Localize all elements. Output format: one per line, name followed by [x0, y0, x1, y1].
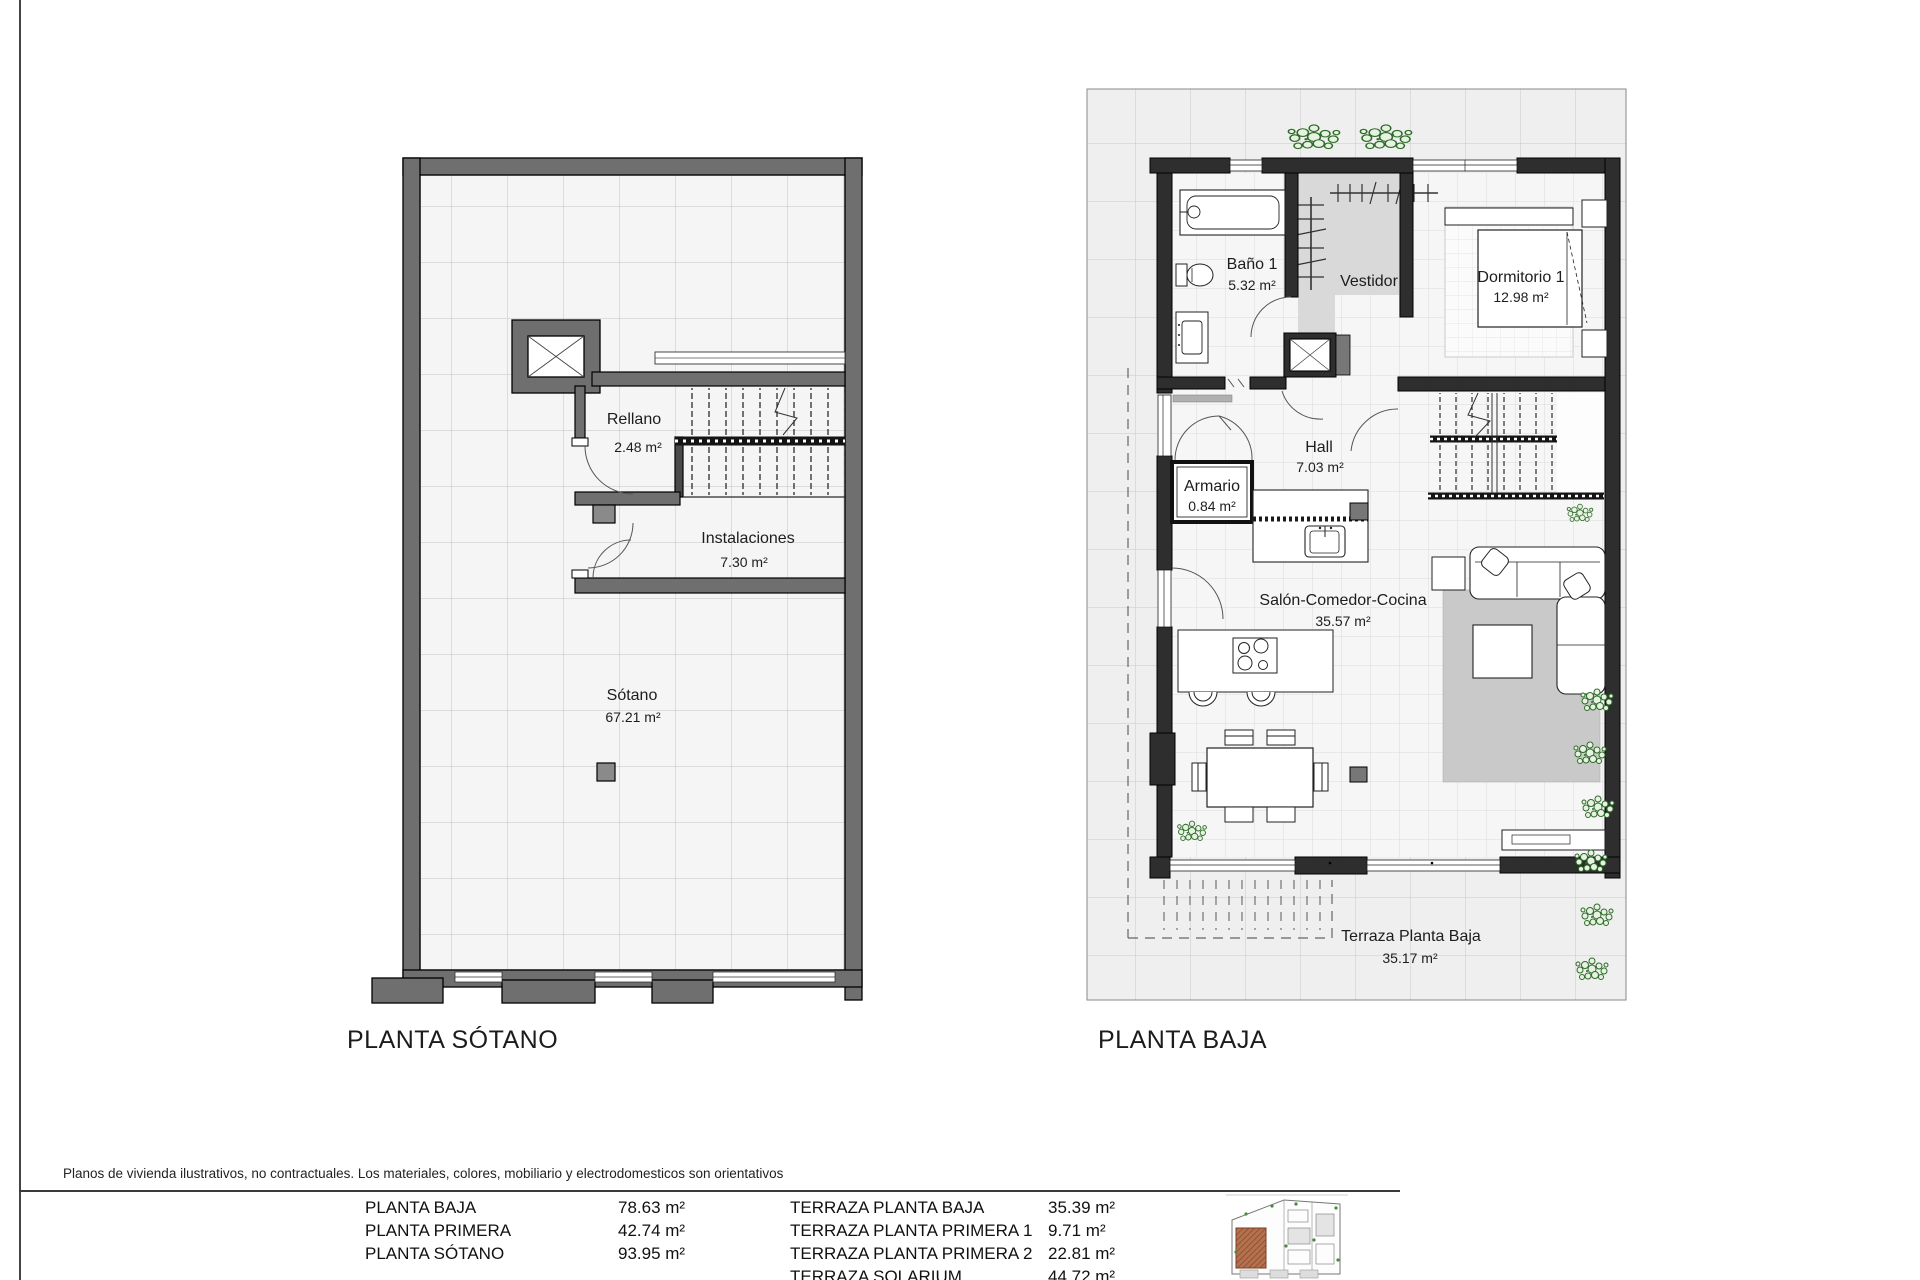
- side-table: [1432, 557, 1465, 590]
- floorplan-sheet: Rellano 2.48 m² Instalaciones 7.30 m² Só…: [0, 0, 1920, 1280]
- room-label-rellano: Rellano: [607, 411, 661, 428]
- hall-shaft: [1284, 333, 1350, 377]
- table-row-label: PLANTA PRIMERA: [365, 1221, 511, 1241]
- table-row-value: 22.81 m²: [1048, 1244, 1115, 1264]
- table-row-label: TERRAZA PLANTA PRIMERA 1: [790, 1221, 1032, 1241]
- room-area-armario: 0.84 m²: [1188, 498, 1236, 514]
- table-row-value: 44.72 m²: [1048, 1267, 1115, 1280]
- room-area-hall: 7.03 m²: [1296, 459, 1344, 475]
- plan-title-baja: PLANTA BAJA: [1098, 1026, 1267, 1055]
- table-row-label: PLANTA BAJA: [365, 1198, 476, 1218]
- room-label-vestidor: Vestidor: [1340, 273, 1398, 290]
- room-label-sotano: Sótano: [607, 687, 658, 704]
- room-area-instalaciones: 7.30 m²: [720, 554, 768, 570]
- floor-plan-sotano: Rellano 2.48 m² Instalaciones 7.30 m² Só…: [365, 150, 870, 1005]
- room-area-dormitorio: 12.98 m²: [1493, 289, 1549, 305]
- room-label-armario: Armario: [1184, 478, 1240, 495]
- table-row-label: TERRAZA PLANTA PRIMERA 2: [790, 1244, 1032, 1264]
- sotano-stairs: [675, 388, 845, 497]
- bathroom-sink: [1176, 312, 1208, 363]
- table-row-value: 35.39 m²: [1048, 1198, 1115, 1218]
- table-row-value: 78.63 m²: [618, 1198, 685, 1218]
- room-label-dormitorio: Dormitorio 1: [1477, 269, 1564, 286]
- floor-plan-baja: Baño 1 5.32 m² Vestidor Dormitorio 1 12.…: [1080, 85, 1635, 1005]
- sotano-floor: [420, 175, 845, 970]
- room-area-bano: 5.32 m²: [1228, 277, 1276, 293]
- cooktop: [1233, 638, 1277, 673]
- site-plan-thumbnail: [1226, 1194, 1348, 1280]
- table-row-label: PLANTA SÓTANO: [365, 1244, 504, 1264]
- tv-sideboard: [1502, 830, 1605, 850]
- baja-stairs: [1428, 393, 1604, 496]
- room-label-salon: Salón-Comedor-Cocina: [1259, 592, 1426, 609]
- dining-table: [1207, 748, 1313, 807]
- kitchen-island: [1253, 490, 1368, 562]
- highlighted-plot: [1236, 1228, 1266, 1268]
- table-row-label: TERRAZA PLANTA BAJA: [790, 1198, 984, 1218]
- room-label-instalaciones: Instalaciones: [701, 530, 794, 547]
- room-label-terraza: Terraza Planta Baja: [1341, 928, 1481, 945]
- kitchen-counter: [1178, 630, 1333, 692]
- plan-title-sotano: PLANTA SÓTANO: [347, 1026, 558, 1055]
- structural-column: [597, 763, 615, 781]
- table-row-value: 93.95 m²: [618, 1244, 685, 1264]
- table-row-value: 42.74 m²: [618, 1221, 685, 1241]
- nightstand: [1582, 200, 1607, 227]
- table-row-label: TERRAZA SOLARIUM: [790, 1267, 962, 1280]
- elevator-shaft: [512, 320, 600, 393]
- room-label-bano: Baño 1: [1227, 256, 1278, 273]
- bedroom-sideboard: [1445, 208, 1573, 225]
- room-area-sotano: 67.21 m²: [605, 709, 661, 725]
- table-row-value: 9.71 m²: [1048, 1221, 1106, 1241]
- room-label-hall: Hall: [1305, 439, 1333, 456]
- bathtub: [1180, 190, 1285, 235]
- room-area-rellano: 2.48 m²: [614, 439, 662, 455]
- nightstand: [1582, 330, 1607, 357]
- structural-column: [1350, 767, 1367, 782]
- coffee-table: [1473, 625, 1532, 678]
- disclaimer-text: Planos de vivienda ilustrativos, no cont…: [63, 1166, 783, 1181]
- footer-divider-line: [19, 1190, 1400, 1192]
- toilet: [1176, 264, 1213, 286]
- sheet-border-line: [19, 0, 21, 1280]
- room-area-terraza: 35.17 m²: [1382, 950, 1438, 966]
- structural-column: [1350, 503, 1368, 520]
- structural-column: [593, 505, 615, 523]
- room-area-salon: 35.57 m²: [1315, 613, 1371, 629]
